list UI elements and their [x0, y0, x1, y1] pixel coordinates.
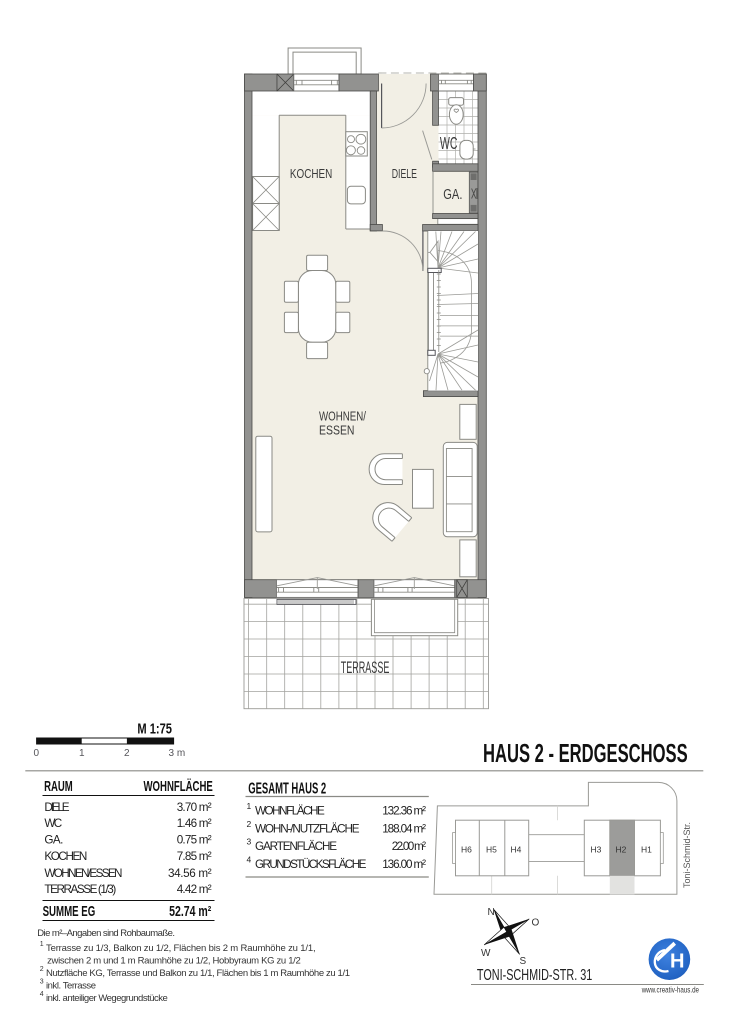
- svg-text:3 m: 3 m: [169, 748, 186, 759]
- svg-text:W: W: [481, 948, 491, 959]
- svg-text:Terrasse zu 1/3, Balkon zu 1/: Terrasse zu 1/3, Balkon zu 1/2, Flächen …: [46, 943, 316, 954]
- svg-text:H5: H5: [486, 845, 497, 855]
- svg-text:7.85 m²: 7.85 m²: [177, 850, 212, 863]
- svg-text:1.46 m²: 1.46 m²: [177, 817, 212, 830]
- svg-text:0: 0: [34, 748, 40, 759]
- svg-text:O: O: [532, 918, 540, 929]
- svg-text:KOCHEN: KOCHEN: [290, 166, 332, 181]
- svg-text:H2: H2: [616, 845, 627, 855]
- svg-text:H4: H4: [511, 845, 522, 855]
- svg-text:GA.: GA.: [443, 186, 462, 203]
- svg-text:M 1:75: M 1:75: [137, 722, 172, 738]
- svg-text:2: 2: [40, 966, 44, 973]
- svg-text:0.75 m²: 0.75 m²: [177, 834, 212, 847]
- svg-text:3.70 m²: 3.70 m²: [177, 801, 212, 814]
- svg-text:inkl. anteiliger Wegegrundstüc: inkl. anteiliger Wegegrundstücke: [46, 993, 168, 1004]
- svg-text:GESAMT HAUS 2: GESAMT HAUS 2: [248, 780, 326, 797]
- svg-text:2: 2: [124, 748, 130, 759]
- svg-text:136.00 m²: 136.00 m²: [382, 858, 426, 871]
- svg-text:inkl. Terrasse: inkl. Terrasse: [46, 981, 96, 992]
- svg-text:S: S: [520, 956, 527, 967]
- svg-text:4: 4: [247, 854, 252, 864]
- svg-text:N: N: [488, 907, 495, 918]
- svg-text:GA.: GA.: [44, 834, 63, 847]
- svg-text:TERRASSE (1/3): TERRASSE (1/3): [44, 883, 116, 896]
- svg-text:4: 4: [40, 991, 44, 998]
- svg-text:www.creativ-haus.de: www.creativ-haus.de: [641, 986, 699, 995]
- svg-text:H3: H3: [591, 845, 602, 855]
- svg-text:WC: WC: [440, 133, 458, 153]
- svg-text:KOCHEN: KOCHEN: [44, 850, 87, 863]
- svg-text:52.74 m²: 52.74 m²: [169, 904, 211, 920]
- svg-text:2: 2: [247, 819, 252, 829]
- svg-text:SUMME EG: SUMME EG: [43, 904, 96, 920]
- svg-text:GRUNDSTÜCKSFLÄCHE: GRUNDSTÜCKSFLÄCHE: [255, 858, 367, 871]
- svg-text:WC: WC: [44, 817, 62, 830]
- svg-text:TERRASSE: TERRASSE: [341, 658, 390, 677]
- svg-text:Toni-Schmid-Str.: Toni-Schmid-Str.: [682, 822, 692, 888]
- svg-text:1: 1: [40, 941, 44, 948]
- svg-text:RAUM: RAUM: [44, 779, 73, 795]
- svg-text:188.04 m²: 188.04 m²: [382, 822, 426, 835]
- svg-text:WOHNEN/: WOHNEN/: [319, 409, 366, 424]
- svg-text:3: 3: [40, 979, 44, 986]
- svg-text:H: H: [670, 951, 685, 973]
- svg-text:H6: H6: [461, 845, 472, 855]
- svg-text:HAUS 2 - ERDGESCHOSS: HAUS 2 - ERDGESCHOSS: [483, 740, 688, 768]
- svg-text:GARTENFLÄCHE: GARTENFLÄCHE: [255, 840, 337, 853]
- svg-text:1: 1: [247, 801, 252, 811]
- svg-text:22.00 m²: 22.00 m²: [392, 840, 426, 853]
- svg-text:Die m²–Angaben sind Rohbaumaße: Die m²–Angaben sind Rohbaumaße.: [37, 928, 175, 939]
- svg-text:DIELE: DIELE: [392, 166, 418, 181]
- svg-text:4.42 m²: 4.42 m²: [177, 883, 212, 896]
- svg-text:132.36 m²: 132.36 m²: [382, 805, 426, 818]
- svg-text:34.56 m²: 34.56 m²: [168, 867, 212, 880]
- svg-text:TONI-SCHMID-STR. 31: TONI-SCHMID-STR. 31: [477, 967, 592, 984]
- svg-text:ESSEN: ESSEN: [319, 423, 355, 438]
- svg-text:Nutzfläche KG, Terrasse und Ba: Nutzfläche KG, Terrasse und Balkon zu 1/…: [46, 968, 350, 979]
- svg-text:1: 1: [79, 748, 85, 759]
- svg-text:WOHN-/NUTZFLÄCHE: WOHN-/NUTZFLÄCHE: [255, 822, 360, 835]
- svg-text:WOHNFLÄCHE: WOHNFLÄCHE: [255, 805, 325, 818]
- svg-text:zwischen 2 m und 1 m Raumhöhe: zwischen 2 m und 1 m Raumhöhe zu 1/2, Ho…: [47, 956, 301, 967]
- svg-text:H1: H1: [641, 845, 652, 855]
- svg-text:DIELE: DIELE: [44, 801, 69, 814]
- svg-text:WOHNFLÄCHE: WOHNFLÄCHE: [144, 778, 213, 795]
- svg-text:3: 3: [247, 837, 252, 847]
- svg-text:WOHNEN/ESSEN: WOHNEN/ESSEN: [44, 867, 122, 880]
